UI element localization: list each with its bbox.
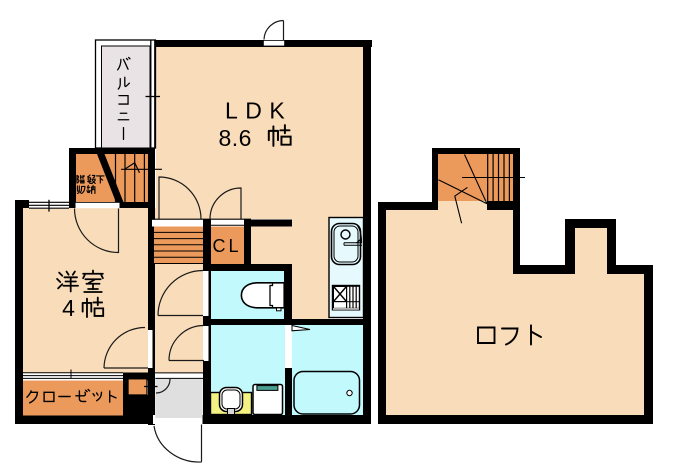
- svg-text:CL: CL: [213, 236, 242, 256]
- svg-text:4: 4: [62, 295, 75, 321]
- svg-text:8.6: 8.6: [219, 125, 252, 151]
- svg-text:LDK: LDK: [225, 98, 292, 124]
